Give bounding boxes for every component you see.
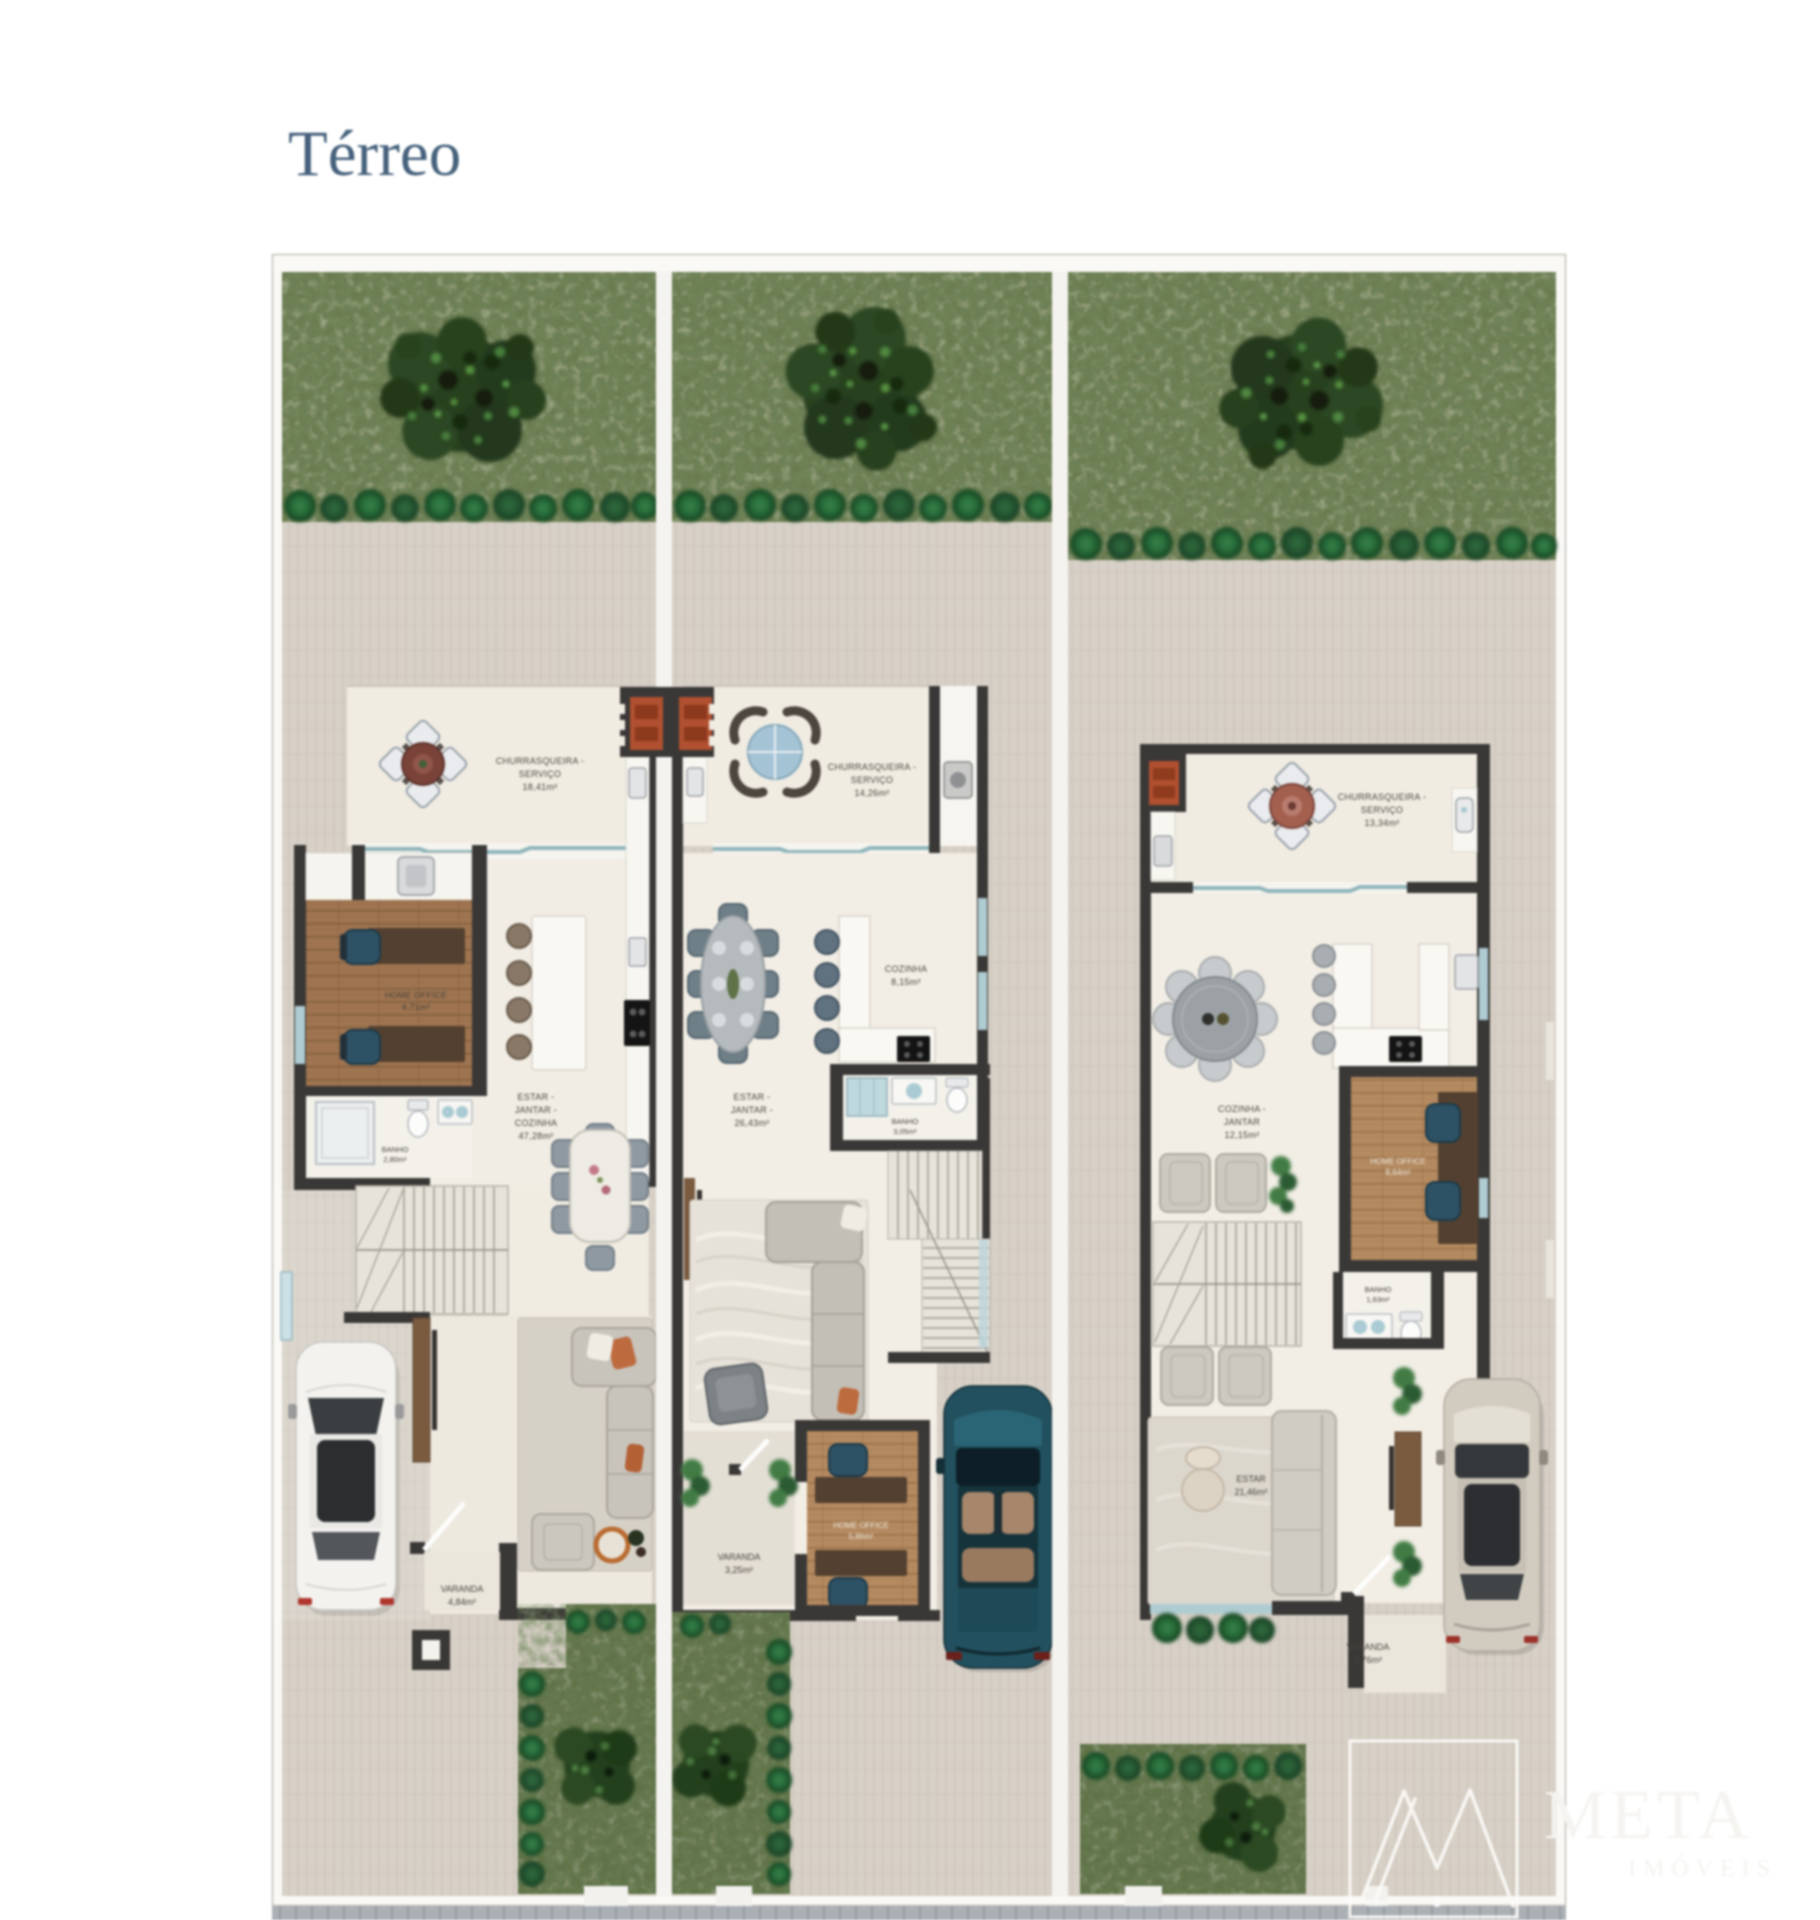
svg-text:12,15m²: 12,15m² [1224, 1130, 1259, 1140]
svg-text:26,43m²: 26,43m² [734, 1118, 769, 1128]
svg-text:VARANDA: VARANDA [441, 1584, 484, 1594]
svg-text:CHURRASQUEIRA -: CHURRASQUEIRA - [828, 762, 917, 772]
svg-text:CHURRASQUEIRA -: CHURRASQUEIRA - [1338, 792, 1427, 802]
svg-text:18,41m²: 18,41m² [522, 782, 557, 792]
svg-text:Térreo: Térreo [288, 118, 461, 190]
svg-text:2,76m²: 2,76m² [1354, 1655, 1382, 1665]
svg-text:ESTAR: ESTAR [1236, 1474, 1266, 1484]
svg-text:BANHO: BANHO [1365, 1285, 1392, 1294]
svg-text:CHURRASQUEIRA -: CHURRASQUEIRA - [496, 756, 585, 766]
svg-text:VARANDA: VARANDA [718, 1552, 761, 1562]
svg-text:5,86m²: 5,86m² [849, 1532, 874, 1541]
svg-text:13,34m²: 13,34m² [1364, 818, 1399, 828]
svg-text:BANHO: BANHO [382, 1145, 409, 1154]
svg-text:14,26m²: 14,26m² [854, 788, 889, 798]
svg-text:47,28m²: 47,28m² [518, 1131, 553, 1141]
svg-text:21,46m²: 21,46m² [1234, 1487, 1267, 1497]
svg-text:SERVIÇO: SERVIÇO [519, 769, 561, 779]
svg-text:JANTAR -: JANTAR - [515, 1105, 557, 1115]
svg-text:SERVIÇO: SERVIÇO [851, 775, 893, 785]
svg-text:4,84m²: 4,84m² [448, 1597, 476, 1607]
svg-text:8,15m²: 8,15m² [891, 977, 921, 987]
svg-text:3,25m²: 3,25m² [725, 1565, 753, 1575]
svg-text:HOME OFFICE: HOME OFFICE [385, 990, 447, 1000]
svg-text:JANTAR: JANTAR [1224, 1117, 1260, 1127]
svg-text:HOME OFFICE: HOME OFFICE [1370, 1157, 1426, 1166]
svg-text:COZINHA -: COZINHA - [1218, 1104, 1266, 1114]
svg-text:COZINHA: COZINHA [885, 964, 928, 974]
svg-text:4,71m²: 4,71m² [402, 1002, 430, 1012]
svg-text:8,64m²: 8,64m² [1386, 1168, 1411, 1177]
svg-text:HOME OFFICE: HOME OFFICE [833, 1521, 889, 1530]
svg-text:2,80m²: 2,80m² [383, 1155, 407, 1164]
svg-text:JANTAR -: JANTAR - [731, 1105, 773, 1115]
svg-text:VARANDA: VARANDA [1347, 1642, 1390, 1652]
svg-text:ESTAR -: ESTAR - [734, 1092, 771, 1102]
svg-text:IMÓVEIS: IMÓVEIS [1628, 1855, 1777, 1882]
svg-text:1,63m²: 1,63m² [1366, 1295, 1390, 1304]
svg-text:ESTAR -: ESTAR - [518, 1092, 555, 1102]
svg-text:BANHO: BANHO [892, 1117, 919, 1126]
svg-text:3,05m²: 3,05m² [893, 1127, 917, 1136]
svg-text:META: META [1544, 1777, 1753, 1854]
svg-text:SERVIÇO: SERVIÇO [1361, 805, 1403, 815]
svg-text:COZINHA: COZINHA [515, 1118, 558, 1128]
